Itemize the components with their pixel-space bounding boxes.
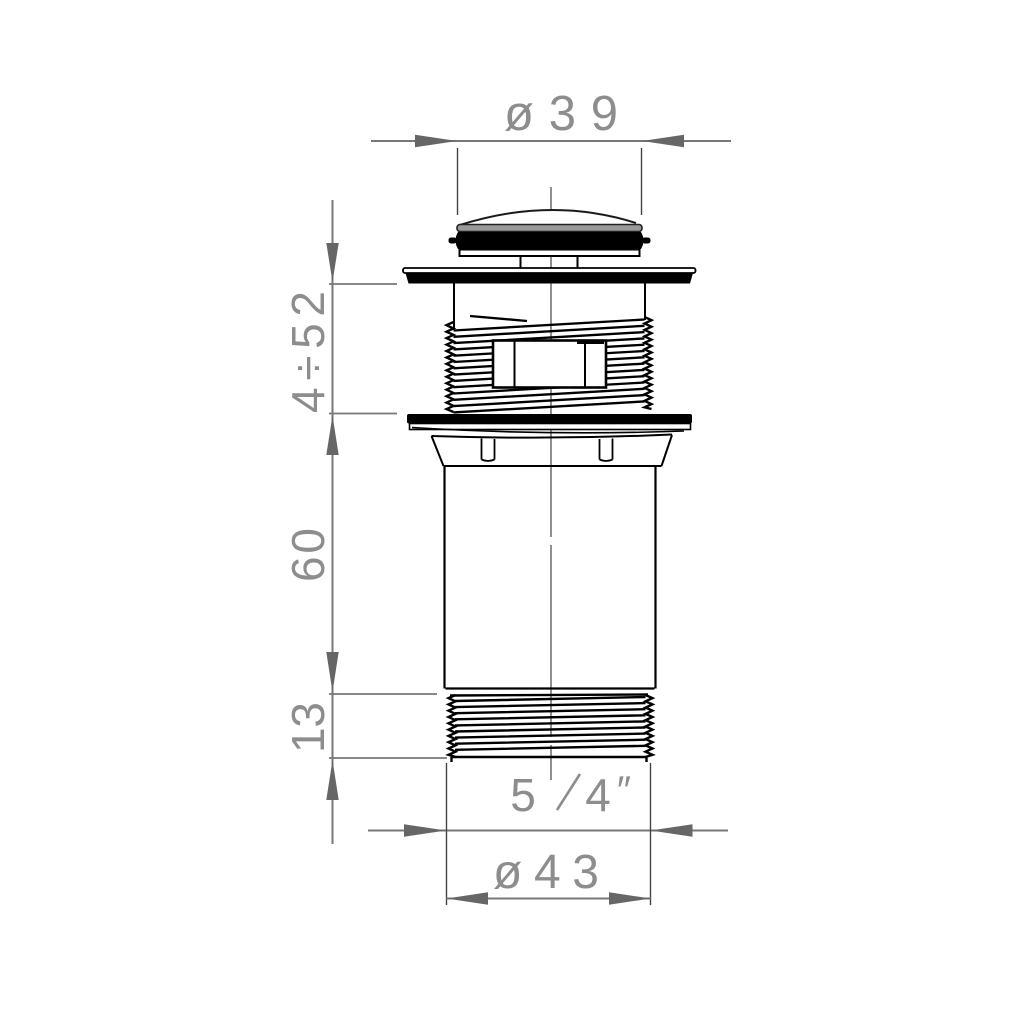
svg-text:4: 4 <box>585 769 611 821</box>
svg-text:5: 5 <box>510 769 536 821</box>
svg-text:″: ″ <box>617 769 631 813</box>
svg-text:ø39: ø39 <box>504 87 618 141</box>
svg-text:ø43: ø43 <box>493 846 599 899</box>
svg-text:13: 13 <box>282 702 334 753</box>
